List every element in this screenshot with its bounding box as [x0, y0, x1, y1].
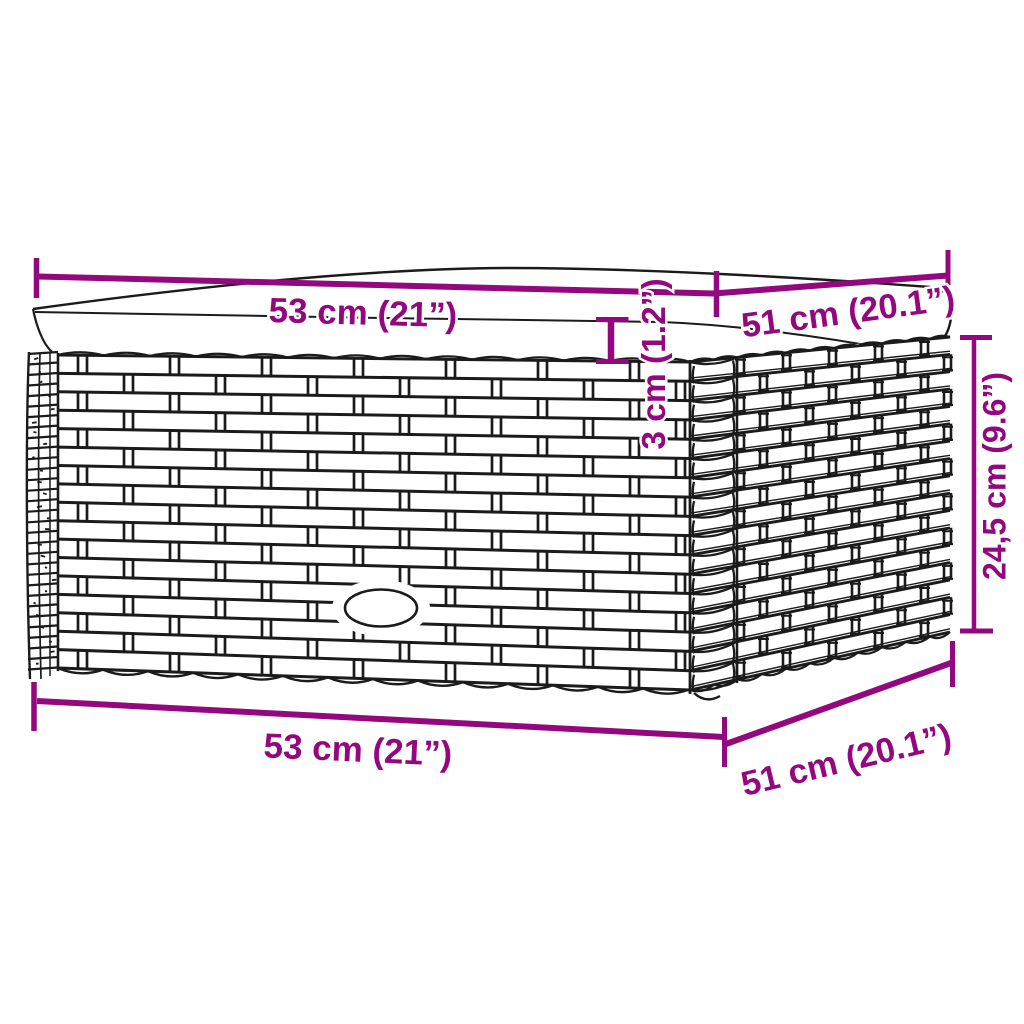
svg-text:3 cm (1.2”): 3 cm (1.2”)	[636, 278, 673, 449]
svg-text:53 cm (21”): 53 cm (21”)	[263, 726, 453, 774]
svg-text:53 cm (21”): 53 cm (21”)	[268, 291, 458, 335]
svg-text:24,5 cm (9.6”): 24,5 cm (9.6”)	[977, 372, 1013, 580]
